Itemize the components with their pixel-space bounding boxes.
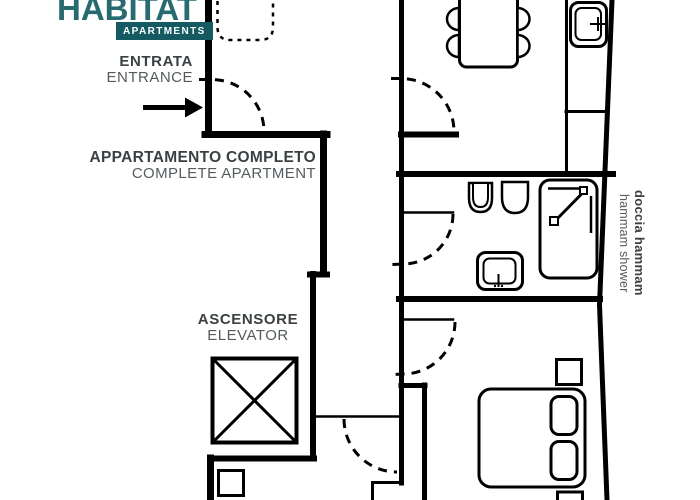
chair-right-1	[518, 8, 530, 30]
apartment-title: APPARTAMENTO COMPLETO	[56, 149, 316, 166]
arrow-right-icon	[143, 98, 203, 118]
toilet	[469, 183, 492, 212]
chair-left-1	[447, 8, 459, 30]
hammam-title: doccia hammam	[631, 158, 647, 328]
nightstand-top	[557, 360, 582, 385]
entrance-subtitle: ENTRANCE	[40, 70, 193, 86]
entrance-label: ENTRATA ENTRANCE	[40, 54, 193, 86]
apartment-subtitle: COMPLETE APARTMENT	[56, 166, 316, 182]
pillow-1	[551, 397, 577, 435]
wall-exterior-right	[600, 0, 613, 500]
bedroom-furniture	[479, 360, 585, 500]
dining-table	[460, 0, 518, 67]
elevator-label: ASCENSORE ELEVATOR	[168, 311, 328, 344]
hammam-shower-cabin	[540, 180, 597, 278]
shaft-box	[373, 483, 401, 500]
nightstand-bottom	[558, 492, 583, 500]
elevator-subtitle: ELEVATOR	[168, 328, 328, 344]
hammam-subtitle: hammam shower	[616, 158, 631, 328]
hammam-label: doccia hammam hammam shower	[613, 158, 647, 328]
hall-door-arc	[344, 419, 397, 472]
entry-mat	[218, 0, 274, 40]
apartment-label: APPARTAMENTO COMPLETO COMPLETE APARTMENT	[56, 149, 316, 182]
stair-column	[219, 471, 244, 496]
dining-table-group	[447, 0, 530, 67]
elevator-title: ASCENSORE	[168, 311, 328, 328]
bidet	[502, 182, 528, 213]
chair-left-2	[447, 35, 459, 57]
kitchen-sink	[571, 3, 607, 47]
chair-right-2	[518, 35, 530, 57]
entrance-title: ENTRATA	[40, 54, 193, 70]
brand-badge: APARTMENTS	[116, 22, 213, 40]
washbasin	[478, 253, 523, 290]
elevator-cabin	[213, 359, 297, 443]
pillow-2	[551, 442, 577, 480]
